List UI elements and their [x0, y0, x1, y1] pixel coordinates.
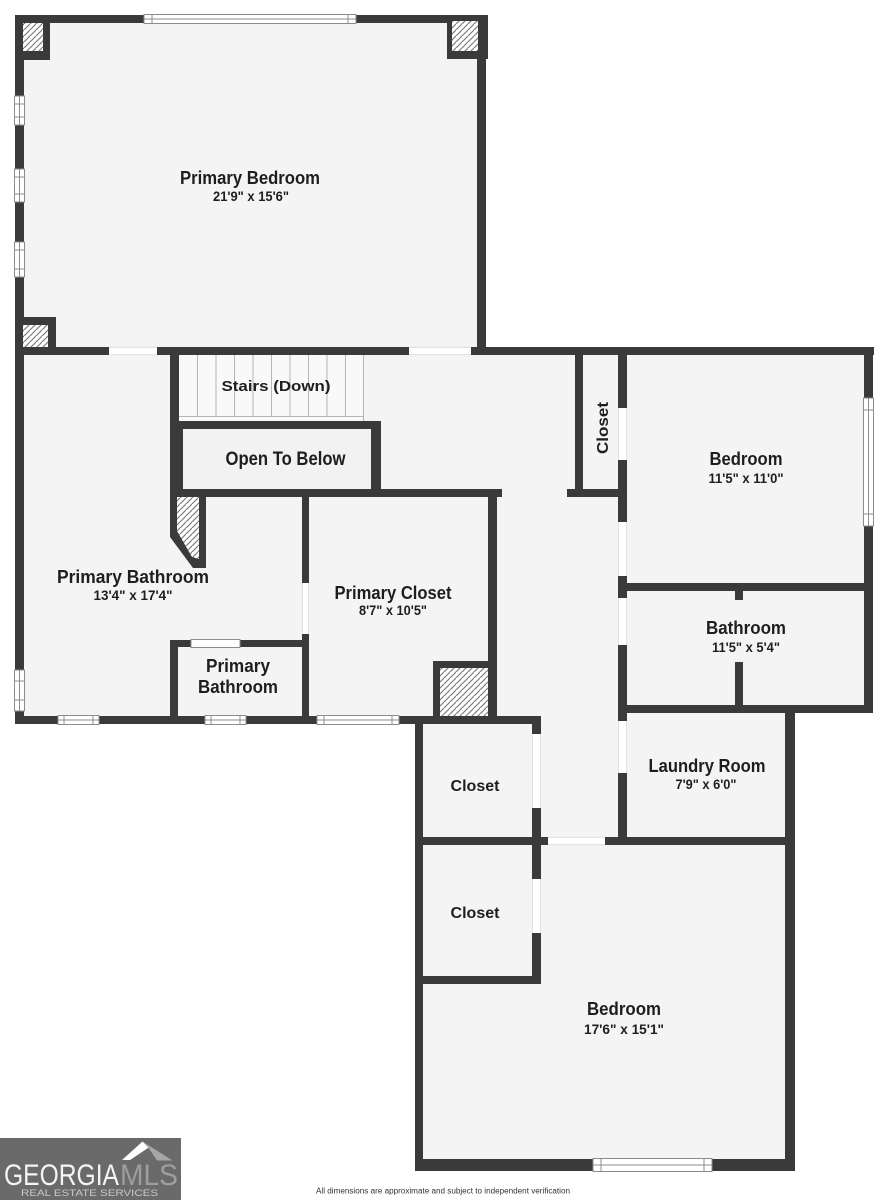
- svg-text:8'7" x 10'5": 8'7" x 10'5": [359, 603, 427, 618]
- svg-text:Primary Bathroom: Primary Bathroom: [57, 566, 209, 587]
- svg-text:Closet: Closet: [451, 905, 501, 922]
- svg-text:13'4" x 17'4": 13'4" x 17'4": [94, 588, 173, 603]
- svg-text:Primary: Primary: [206, 655, 271, 676]
- svg-text:Closet: Closet: [595, 402, 612, 454]
- svg-text:Bedroom: Bedroom: [587, 998, 661, 1019]
- svg-text:Stairs (Down): Stairs (Down): [222, 378, 331, 395]
- svg-text:Bedroom: Bedroom: [710, 448, 783, 469]
- svg-text:17'6" x 15'1": 17'6" x 15'1": [584, 1022, 664, 1037]
- svg-text:21'9" x 15'6": 21'9" x 15'6": [213, 189, 289, 204]
- svg-text:Closet: Closet: [451, 778, 501, 795]
- svg-text:11'5" x 11'0": 11'5" x 11'0": [709, 471, 784, 486]
- svg-text:Open To Below: Open To Below: [226, 448, 347, 470]
- svg-text:All dimensions are approximate: All dimensions are approximate and subje…: [316, 1187, 570, 1196]
- svg-text:Primary Closet: Primary Closet: [335, 582, 452, 603]
- svg-text:Laundry Room: Laundry Room: [649, 755, 766, 776]
- svg-text:Bathroom: Bathroom: [198, 676, 278, 697]
- svg-text:Bathroom: Bathroom: [706, 617, 786, 638]
- svg-text:REAL ESTATE SERVICES: REAL ESTATE SERVICES: [21, 1188, 158, 1198]
- svg-text:11'5" x 5'4": 11'5" x 5'4": [712, 640, 780, 655]
- svg-text:Primary Bedroom: Primary Bedroom: [180, 167, 320, 188]
- svg-text:7'9" x 6'0": 7'9" x 6'0": [676, 777, 737, 792]
